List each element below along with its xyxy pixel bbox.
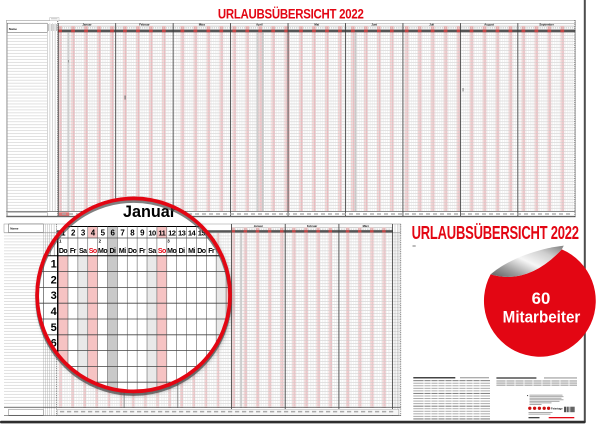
svg-text:60: 60 [532, 289, 551, 308]
svg-text:Sa: Sa [148, 248, 156, 255]
svg-text:März: März [363, 224, 370, 228]
svg-text:Di: Di [109, 248, 116, 255]
svg-text:Mitarbeiter: Mitarbeiter [503, 309, 581, 327]
svg-text:URLAUBSÜBERSICHT 2022: URLAUBSÜBERSICHT 2022 [412, 222, 579, 244]
svg-text:3: 3 [51, 290, 57, 302]
svg-text:Mi: Mi [188, 248, 195, 255]
svg-text:10: 10 [148, 228, 156, 237]
svg-text:5: 5 [51, 322, 57, 334]
svg-text:So: So [89, 248, 97, 255]
svg-text:Fr: Fr [70, 248, 77, 255]
svg-text:Mo: Mo [98, 248, 107, 255]
svg-text:1: 1 [51, 259, 57, 271]
svg-text:Do: Do [59, 248, 68, 255]
svg-text:Name: Name [9, 27, 18, 31]
svg-text:2: 2 [51, 274, 57, 286]
svg-text:Sa: Sa [79, 248, 87, 255]
svg-text:Fr: Fr [139, 248, 146, 255]
svg-text:Name: Name [10, 227, 19, 231]
svg-text:URLAUBSÜBERSICHT 2022: URLAUBSÜBERSICHT 2022 [218, 5, 364, 21]
svg-text:So: So [158, 248, 166, 255]
svg-text:4: 4 [51, 306, 58, 318]
svg-text:13: 13 [178, 228, 186, 237]
svg-text:12: 12 [168, 228, 176, 237]
svg-text:Do: Do [197, 248, 206, 255]
svg-text:Mi: Mi [119, 248, 126, 255]
svg-text:Di: Di [179, 248, 186, 255]
svg-text:Fr: Fr [208, 248, 215, 255]
svg-text:Do: Do [128, 248, 137, 255]
svg-text:Feiertage: Feiertage [551, 406, 563, 410]
svg-text:Januar: Januar [254, 224, 264, 228]
svg-text:Februar: Februar [307, 224, 318, 228]
svg-text:Mo: Mo [167, 248, 176, 255]
